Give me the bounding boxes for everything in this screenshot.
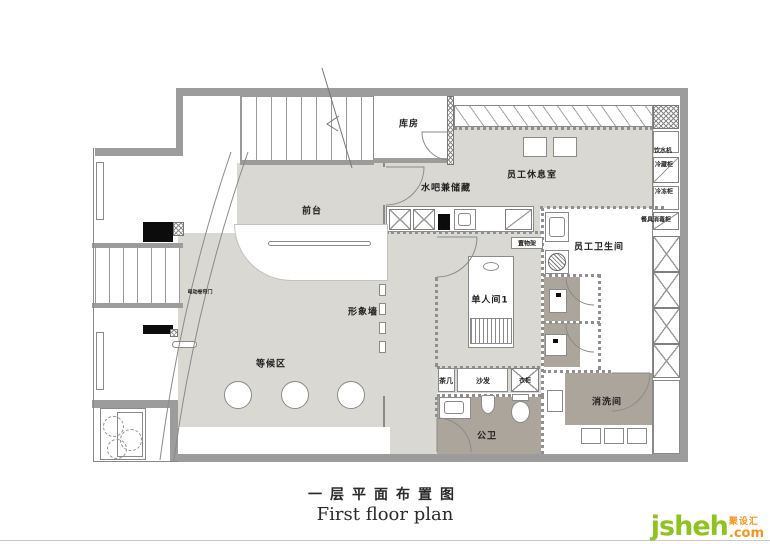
wall-top	[176, 88, 688, 96]
feature-wall-segment	[379, 303, 386, 315]
washroom-sink	[627, 428, 647, 444]
label-feature-wall: 形象墙	[348, 305, 378, 318]
floor-plan: 库房 员工休息室 水吧兼储藏 前台 电动卷帘门 形象墙 置物架 员工卫生间 单人…	[0, 0, 770, 544]
wall-bead-lounge-bottom	[540, 206, 664, 209]
wall-bottom	[170, 454, 688, 462]
wall-right	[680, 88, 688, 462]
window-frame-upper	[96, 162, 104, 220]
entry-steps	[95, 248, 180, 303]
feature-wall-segment	[379, 341, 386, 353]
stall-toilet-btn	[556, 293, 561, 297]
corridor-wall-upper	[383, 163, 385, 167]
appliance-hatch-box	[653, 105, 679, 129]
window-frame-lower	[96, 332, 104, 390]
wall-bead-counter-bottom	[386, 231, 543, 234]
column-hatch-lower	[170, 329, 178, 337]
wall-bead-stall1-top	[543, 274, 600, 277]
line-left-boundary	[93, 148, 94, 462]
waiting-stool	[337, 381, 365, 409]
toilet-tank	[512, 394, 529, 401]
logo-brand-text: jsheh	[651, 513, 728, 540]
counter-cabinet	[413, 209, 435, 230]
wall-bead-single-left	[435, 277, 438, 367]
counter-cabinet-diag	[505, 209, 532, 230]
door-arc-storage	[422, 132, 450, 160]
washroom-sink	[604, 428, 624, 444]
label-rolling-door: 电动卷帘门	[187, 289, 212, 296]
stall-toilet	[545, 334, 567, 356]
wall-bead-washroom-top	[543, 370, 611, 373]
label-public-wc: 公卫	[477, 429, 497, 442]
label-water-bar: 水吧兼储藏	[421, 181, 471, 194]
storage-cabinet	[653, 236, 680, 272]
label-staff-wc: 员工卫生间	[574, 240, 624, 253]
label-storage: 库房	[399, 117, 419, 130]
wall-bead-publicwc-left	[435, 397, 438, 417]
lounge-table	[553, 137, 577, 157]
wall-storage-bottom	[367, 158, 447, 163]
staff-wc-sink-basin	[549, 217, 565, 237]
washroom-sink	[581, 428, 601, 444]
wall-bead-lounge-top	[454, 127, 653, 130]
wall-storage-right-hatch	[447, 96, 454, 165]
line-left-bottom-boundary	[93, 461, 178, 462]
wall-bead-stall-mid	[543, 321, 600, 324]
label-single-room: 单人间1	[471, 293, 508, 306]
storage-cabinet	[653, 344, 680, 378]
counter-black-cell	[438, 214, 450, 230]
wall-left-bottom-vert	[170, 400, 178, 460]
door-handle-pill	[172, 341, 197, 348]
label-front-desk: 前台	[302, 204, 322, 217]
counter-cabinet	[389, 209, 411, 230]
storage-cabinet	[653, 308, 680, 344]
storage-cabinet	[653, 272, 680, 308]
wall-left-upper	[95, 148, 183, 156]
cabinet-band-top-right	[454, 105, 653, 127]
bed-foot-roll	[470, 318, 512, 344]
cabinet-lower-right	[653, 380, 680, 454]
corridor-wall-lower	[383, 396, 385, 427]
label-sofa: 沙发	[476, 376, 490, 386]
floor-front-area	[237, 163, 390, 233]
stall-toilet-btn	[553, 339, 558, 343]
site-logo: jsheh 聚设汇 .com	[651, 513, 764, 540]
washroom-table	[547, 390, 563, 412]
front-desk-counter-line	[268, 241, 371, 246]
column-black-lower	[143, 325, 173, 334]
storage-left-wall	[373, 96, 374, 158]
bed-face-hole	[483, 262, 499, 271]
wall-bead-publicwc-right	[541, 396, 544, 454]
public-wc-basin	[444, 401, 464, 414]
logo-suffix: .com	[729, 527, 764, 540]
label-wash-room: 消洗间	[592, 395, 622, 408]
wall-bead-stall-right	[598, 274, 601, 370]
label-freezer: 冷冻柜	[655, 187, 673, 196]
plant	[107, 439, 127, 459]
waiting-stool	[281, 381, 309, 409]
plan-title-zh: 一层平面布置图	[0, 484, 770, 504]
wall-left-band-3	[92, 400, 178, 408]
waiting-stool	[224, 381, 252, 409]
label-tea-table: 茶几	[439, 376, 453, 386]
wall-left-band-2	[92, 303, 183, 308]
column-hatch-upper	[173, 222, 184, 236]
label-fridge: 冷藏柜	[655, 160, 673, 169]
label-water-dispenser: 饮水机	[654, 146, 672, 155]
feature-wall-segment	[379, 322, 386, 334]
label-lounge: 员工休息室	[507, 168, 557, 181]
column-black-upper	[143, 222, 173, 242]
washing-machine-drum	[548, 253, 566, 271]
label-waiting: 等候区	[256, 357, 286, 370]
label-shelf: 置物架	[518, 239, 536, 248]
feature-wall-segment	[379, 284, 386, 296]
label-wardrobe: 衣柜	[519, 376, 531, 385]
staircase	[240, 96, 374, 161]
urinal	[481, 395, 495, 414]
lounge-table	[523, 137, 547, 157]
counter-sink-basin	[458, 213, 471, 226]
label-sterilizer: 餐具消毒柜	[641, 215, 671, 224]
toilet-bowl	[511, 401, 530, 423]
wall-top-left-corner	[176, 88, 183, 156]
